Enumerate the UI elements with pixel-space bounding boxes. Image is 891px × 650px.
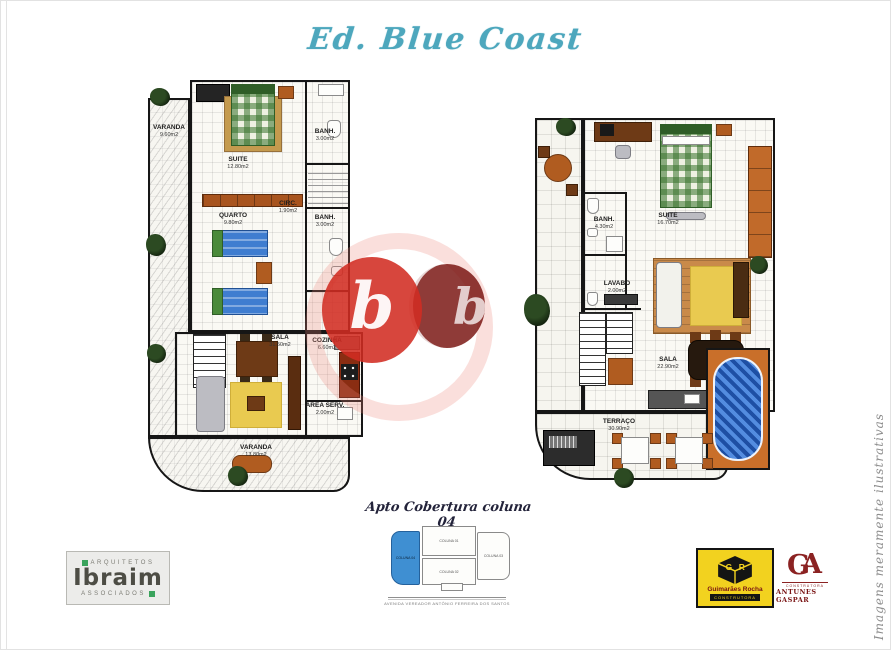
logo-ibraim: ARQUITETOS Ibraim ASSOCIADOS xyxy=(66,551,170,605)
logo-ibraim-name: Ibraim xyxy=(73,567,163,590)
closet-shelves xyxy=(308,168,348,204)
deck-tv-unit xyxy=(733,262,749,318)
terrace-table xyxy=(621,437,649,464)
plant xyxy=(146,234,166,256)
suite2-nightstand xyxy=(716,124,732,136)
room-name: BANH. xyxy=(594,216,615,223)
room-name: VARANDA xyxy=(153,124,185,131)
banh1-sink-counter xyxy=(318,84,344,96)
plant xyxy=(614,468,634,488)
room-name: BANH. xyxy=(315,128,336,135)
room-area: 3.00m2 xyxy=(303,222,347,229)
room-name: ÁREA SERV. xyxy=(306,402,345,409)
room-name: CIRC. xyxy=(279,200,297,207)
svg-text:G: G xyxy=(726,562,733,572)
floorplan-poster: Ed. Blue Coast VARANDA 9.60m2 xyxy=(0,0,891,650)
room-area: 2.00m2 xyxy=(592,288,642,295)
suite-bed-headboard xyxy=(231,84,275,94)
footprint-unit-coluna-02: COLUNA 02 xyxy=(422,558,476,585)
left-plan-wall-closet xyxy=(305,207,350,209)
nightstand xyxy=(278,86,294,99)
watermark-letter: b xyxy=(350,275,395,339)
scan-edge-left xyxy=(6,0,7,650)
room-area: 12.80m2 xyxy=(210,164,266,171)
building-footprint-diagram: COLUNA 04 COLUNA 01 COLUNA 02 COLUNA 03 xyxy=(385,524,510,592)
terrace-chair xyxy=(702,458,713,469)
room-label-suite-left: SUITE 12.80m2 xyxy=(210,156,266,170)
desk-chair xyxy=(615,145,631,159)
room-area: 9.60m2 xyxy=(149,132,189,139)
right-plan-wall-stairs xyxy=(583,308,641,310)
suite2-pillows xyxy=(662,136,710,145)
bbq-rack xyxy=(549,436,577,448)
room-area: 16.70m2 xyxy=(643,220,693,227)
room-area: 22.90m2 xyxy=(646,364,690,371)
room-label-banh2: BANH. 3.00m2 xyxy=(303,214,347,228)
room-name: BANH. xyxy=(315,214,336,221)
logo-ibraim-bottom-row: ASSOCIADOS xyxy=(81,591,155,597)
terrace-table-2 xyxy=(675,437,703,464)
right-plan-wall-lavabo xyxy=(583,254,627,256)
room-area: 4.30m2 xyxy=(585,224,623,231)
room-label-lavabo: LAVABO 2.00m2 xyxy=(592,280,642,294)
left-plan-wall-banh1 xyxy=(305,163,350,165)
bar-sink xyxy=(684,394,700,404)
room-label-quarto: QUARTO 9.80m2 xyxy=(205,212,261,226)
room-name: SUITE xyxy=(228,156,247,163)
room-label-terraco: TERRAÇO 30.90m2 xyxy=(590,418,648,432)
svg-text:R: R xyxy=(739,562,745,572)
banh-toilet xyxy=(587,198,599,214)
logo-gr-name: Guimarães Rocha xyxy=(707,586,762,593)
coffee-table xyxy=(247,396,265,411)
room-label-sala-right: SALA 22.90m2 xyxy=(646,356,690,370)
terrace-chair xyxy=(650,458,661,469)
ga-monogram-right: A xyxy=(801,551,822,578)
ga-name: ANTUNES GASPAR xyxy=(776,588,834,604)
desk-monitor xyxy=(600,124,614,136)
watermark-logo-front: b xyxy=(322,257,422,363)
room-area: 9.80m2 xyxy=(205,220,261,227)
room-name: VARANDA xyxy=(240,444,272,451)
room-name: LAVABO xyxy=(604,280,630,287)
room-label-sala-left: SALA 31.50m2 xyxy=(256,334,304,348)
lavabo-counter xyxy=(604,294,638,305)
suite2-headboard xyxy=(660,124,712,134)
room-area: 30.90m2 xyxy=(590,426,648,433)
footprint-unit-coluna-01: COLUNA 01 xyxy=(422,526,476,556)
quarto-nightstand xyxy=(256,262,272,284)
room-area: 1.90m2 xyxy=(270,208,306,215)
side-watermark: Imagens meramente ilustrativas xyxy=(872,413,886,640)
footprint-entry-notch xyxy=(441,583,463,591)
room-label-circ: CIRC. 1.90m2 xyxy=(270,200,306,214)
sofa xyxy=(196,376,225,432)
right-plan-wall-banh-top xyxy=(583,192,627,194)
footprint-unit-coluna-04: COLUNA 04 xyxy=(391,531,420,585)
plant xyxy=(750,256,768,274)
plant xyxy=(556,118,576,136)
unit-label: COLUNA 04 xyxy=(396,556,415,560)
room-area: 31.50m2 xyxy=(256,342,304,349)
room-name: SUITE xyxy=(658,212,677,219)
plant xyxy=(228,466,248,486)
room-area: 13.80m2 xyxy=(228,452,284,459)
room-name: TERRAÇO xyxy=(603,418,635,425)
plant xyxy=(147,344,166,363)
logo-antunes-gaspar: G A CONSTRUTORA ANTUNES GASPAR xyxy=(776,551,834,604)
unit-label: COLUNA 03 xyxy=(484,554,503,558)
ga-rule xyxy=(782,582,828,583)
plant xyxy=(524,294,550,326)
footer-address: AVENIDA VEREADOR ANTÔNIO FERREIRA DOS SA… xyxy=(378,601,516,606)
patio-chair xyxy=(538,146,550,158)
room-label-varanda-bottom: VARANDA 13.80m2 xyxy=(228,444,284,458)
footer-divider xyxy=(388,597,506,598)
green-square-icon xyxy=(149,591,155,597)
room-label-suite-right: SUITE 16.70m2 xyxy=(643,212,693,226)
banh-shower xyxy=(606,236,623,252)
pool xyxy=(713,357,763,461)
logo-guimaraes-rocha: G R Guimarães Rocha CONSTRUTORA xyxy=(696,548,774,608)
stairs-right-plan-flight2 xyxy=(606,312,633,354)
room-area: 3.00m2 xyxy=(303,136,347,143)
quarto-bed-2-pillow xyxy=(212,288,223,315)
room-name: SALA xyxy=(271,334,289,341)
room-label-area-serv: ÁREA SERV. 2.00m2 xyxy=(304,402,346,416)
page-title: Ed. Blue Coast xyxy=(0,22,891,57)
stair-shelf xyxy=(608,358,633,385)
suite2-wardrobe xyxy=(748,146,772,258)
deck-sofa xyxy=(656,262,682,328)
terrace-chair xyxy=(650,433,661,444)
room-area: 2.00m2 xyxy=(304,410,346,417)
footprint-unit-coluna-03: COLUNA 03 xyxy=(477,532,510,580)
unit-label: COLUNA 01 xyxy=(439,539,458,543)
quarto-bed-1-pillow xyxy=(212,230,223,257)
stairs-right-plan-flight1 xyxy=(579,312,606,386)
plant xyxy=(150,88,170,106)
patio-chair xyxy=(566,184,578,196)
room-name: QUARTO xyxy=(219,212,247,219)
terrace-chair xyxy=(702,433,713,444)
unit-label: COLUNA 02 xyxy=(439,570,458,574)
room-label-banh-right: BANH. 4.30m2 xyxy=(585,216,623,230)
room-name: SALA xyxy=(659,356,677,363)
tv-cabinet xyxy=(288,356,301,430)
ga-monogram-icon: G A xyxy=(785,551,825,581)
logo-gr-sub: CONSTRUTORA xyxy=(710,594,760,601)
logo-ibraim-bottom-text: ASSOCIADOS xyxy=(81,591,146,597)
room-label-varanda-top: VARANDA 9.60m2 xyxy=(149,124,189,138)
cube-icon: G R xyxy=(716,555,754,585)
patio-table xyxy=(544,154,572,182)
room-label-banh1: BANH. 3.00m2 xyxy=(303,128,347,142)
